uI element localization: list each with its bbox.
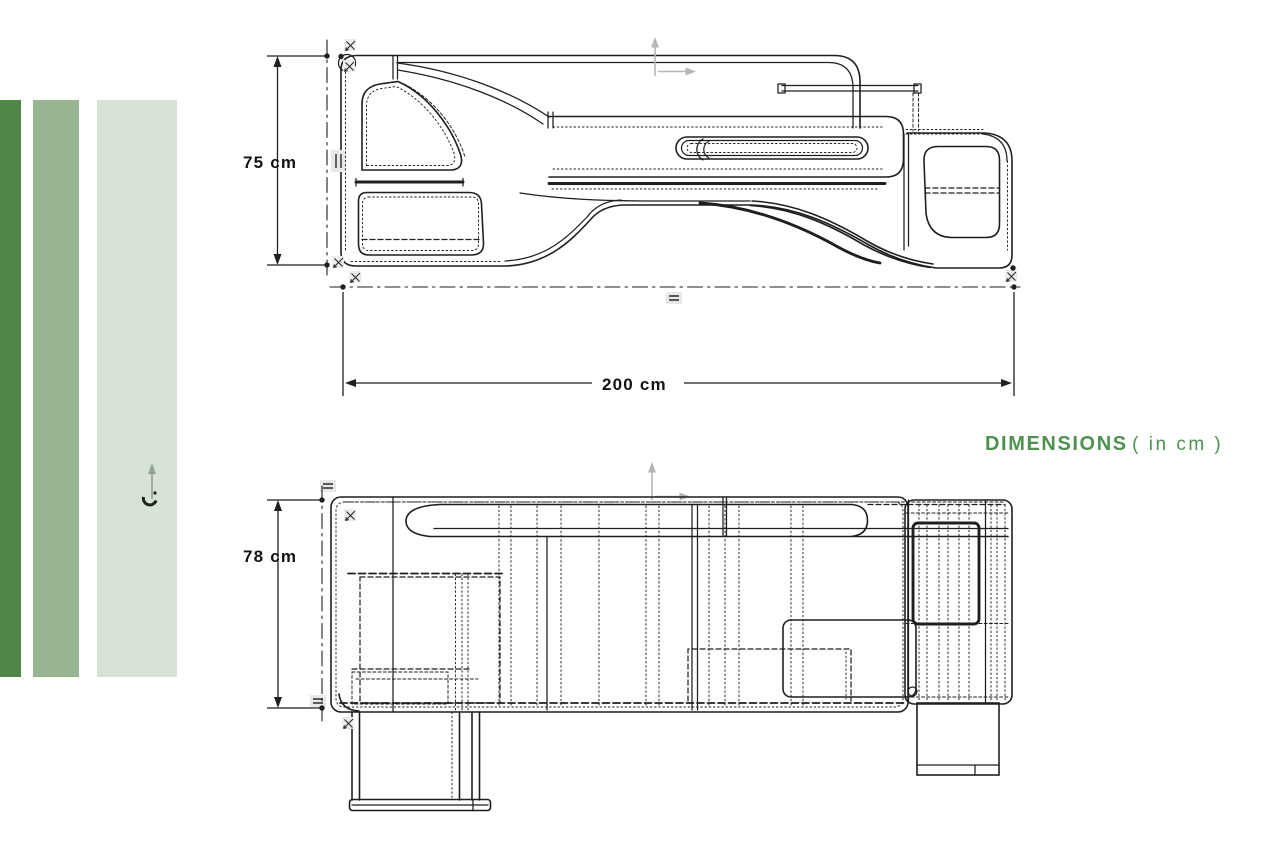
- arrow-up-icon: [274, 56, 282, 67]
- dimension-height-78: 78 cm: [243, 500, 322, 708]
- side-height-label: 75 cm: [243, 153, 297, 172]
- plan-view-cad-markers: [342, 509, 356, 729]
- dimensions-caption: DIMENSIONS ( in cm ): [985, 433, 1223, 456]
- coordinate-axis-icon-side: [651, 37, 696, 76]
- stripe-dark-green: [0, 100, 21, 677]
- page-canvas: 75 cm 200 cm: [0, 0, 1280, 850]
- arrow-up-icon: [274, 500, 282, 511]
- decorative-stripes: [0, 100, 177, 677]
- equal-tags: [310, 150, 682, 707]
- centerlines: [319, 40, 1020, 722]
- stripe-medium-green: [33, 100, 79, 677]
- side-width-label: 200 cm: [602, 375, 667, 394]
- stripe-light-green: [97, 100, 177, 677]
- dimension-width-200: 200 cm: [343, 292, 1014, 396]
- plan-view-linework: [331, 497, 1012, 811]
- arrow-down-icon: [274, 254, 282, 265]
- side-view-linework: [339, 55, 1013, 269]
- coordinate-axis-icon-plan: [648, 462, 690, 501]
- dimensions-caption-bold: DIMENSIONS: [985, 433, 1128, 455]
- plan-height-label: 78 cm: [243, 547, 297, 566]
- arrow-down-icon: [274, 697, 282, 708]
- arrow-left-icon: [345, 379, 356, 387]
- technical-drawing-svg: 75 cm 200 cm: [0, 0, 1280, 850]
- arrow-right-icon: [1001, 379, 1012, 387]
- side-view-cad-markers: [332, 39, 1017, 283]
- dimension-height-75: 75 cm: [243, 56, 327, 265]
- dimensions-caption-units: ( in cm ): [1132, 434, 1223, 455]
